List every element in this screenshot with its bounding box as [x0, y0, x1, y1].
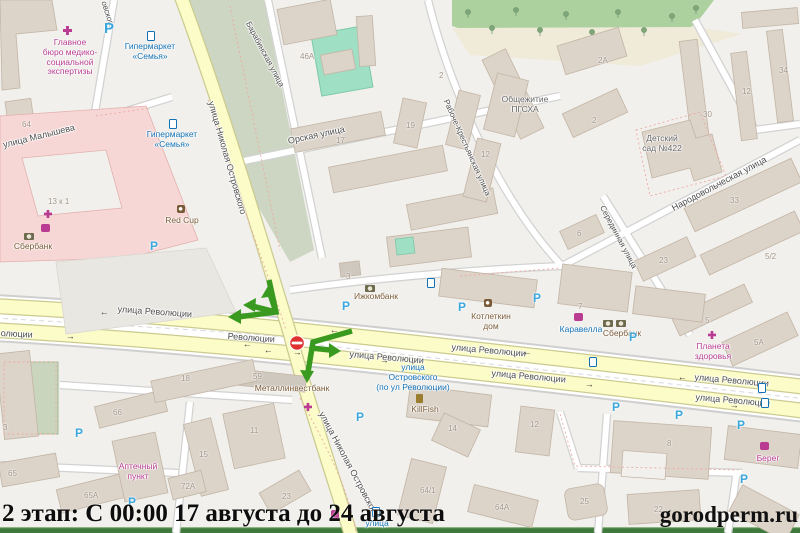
house-number: 30: [703, 110, 712, 119]
poi-label: Берег: [757, 454, 780, 464]
house-number: 72А: [181, 482, 195, 491]
bank-icon: [365, 285, 375, 292]
house-number: 7: [578, 302, 582, 311]
bar-goblet-icon: [416, 394, 423, 403]
street-label: Серединная улица: [598, 204, 639, 270]
parking-icon: P: [675, 408, 683, 422]
house-number: 23: [659, 256, 668, 265]
street-label: олюции: [0, 328, 33, 340]
lane-direction-arrow-icon: ←: [243, 340, 253, 350]
poi-label: Детский сад №422: [642, 134, 682, 154]
house-number: 19: [406, 121, 415, 130]
lane-direction-arrow-icon: ←: [330, 326, 340, 336]
house-number: 25: [580, 497, 589, 506]
street-label: улица Малышева: [2, 122, 76, 149]
poi-label: Котлеткин дом: [471, 312, 511, 332]
transit-stop-icon: [427, 278, 435, 288]
shopping-cart-icon: [760, 442, 769, 450]
street-label: Рабоче-Крестьянская улица: [442, 98, 493, 197]
bank-icon: [603, 320, 613, 327]
poi-label: KillFish: [411, 405, 438, 415]
street-label: улица Революции: [451, 342, 526, 358]
parking-icon: P: [150, 239, 158, 253]
cafe-cup-icon: [177, 205, 185, 213]
house-number: 8: [667, 439, 671, 448]
poi-label: Сбербанк: [14, 242, 52, 252]
street-label: улица Николая Островского: [206, 100, 248, 215]
poi-label: Аптечный пункт: [119, 462, 158, 482]
house-number: 64/1: [420, 486, 436, 495]
transit-stop-icon: [758, 383, 766, 393]
transit-stop-icon: [589, 357, 597, 367]
parking-icon: P: [342, 299, 350, 313]
house-number: 11: [250, 426, 258, 435]
pharmacy-cross-icon: [708, 331, 716, 339]
house-number: 5: [705, 316, 709, 325]
house-number: 15: [199, 450, 208, 459]
poi-label: Ижкомбанк: [354, 292, 398, 302]
house-number: 17: [336, 136, 345, 145]
house-number: 64: [22, 120, 31, 129]
street-label: улица Революции: [117, 304, 192, 319]
poi-label: Red Cup: [165, 216, 199, 226]
parking-icon: P: [737, 418, 745, 432]
map-labels-layer: улица Малышеваовскогоулица Николая Остро…: [0, 0, 800, 533]
poi-label: Главное бюро медико- социальной эксперти…: [43, 38, 98, 77]
house-number: 2: [439, 71, 443, 80]
pharmacy-cross-icon: [304, 403, 312, 411]
house-number: 2А: [598, 56, 608, 65]
house-number: 65А: [84, 491, 98, 500]
house-number: 65: [8, 469, 17, 478]
house-number: 34: [779, 66, 788, 75]
shopping-cart-icon: [41, 224, 50, 232]
lane-direction-arrow-icon: →: [585, 380, 595, 390]
house-number: 3: [346, 272, 350, 281]
shopping-cart-icon: [574, 313, 583, 321]
house-number: 13 к 1: [48, 197, 69, 206]
lane-direction-arrow-icon: →: [66, 332, 76, 342]
lane-direction-arrow-icon: ←: [523, 348, 533, 358]
bank-icon: [616, 320, 626, 327]
poi-label: Гипермаркет «Семья»: [125, 42, 175, 62]
parking-icon: P: [458, 300, 466, 314]
cafe-cup-icon: [484, 299, 492, 307]
stage-caption: 2 этап: С 00:00 17 августа до 24 августа: [2, 500, 445, 528]
house-number: 2: [592, 116, 596, 125]
parking-icon: P: [740, 472, 748, 486]
poi-label: Металлинвестбанк: [255, 384, 330, 394]
transit-stop-icon: [169, 119, 177, 129]
house-number: 59: [253, 372, 262, 381]
poi-label: Гипермаркет «Семья»: [147, 130, 197, 150]
poi-label: Каравелла: [560, 325, 603, 335]
lane-direction-arrow-icon: ←: [100, 308, 110, 318]
poi-label: Общежитие ПГСХА: [502, 95, 549, 115]
pharmacy-cross-icon: [44, 210, 52, 218]
house-number: 12: [530, 420, 539, 429]
lane-direction-arrow-icon: →: [730, 401, 740, 411]
poi-label: улица Островского (по ул Революции): [376, 363, 449, 392]
house-number: 33: [730, 196, 739, 205]
house-number: 12: [742, 87, 751, 96]
parking-icon: P: [533, 291, 541, 305]
bank-icon: [24, 233, 34, 240]
house-number: 5/2: [765, 252, 776, 261]
house-number: 46А: [300, 52, 314, 61]
map-image: улица Малышеваовскогоулица Николая Остро…: [0, 0, 800, 533]
watermark: gorodperm.ru: [660, 502, 798, 528]
lane-direction-arrow-icon: ←: [678, 373, 688, 383]
parking-icon: P: [629, 330, 637, 344]
lane-direction-arrow-icon: ←: [264, 346, 274, 356]
house-number: 12: [481, 150, 490, 159]
parking-icon: P: [356, 410, 364, 424]
lane-direction-arrow-icon: →: [293, 348, 303, 358]
street-label: Барабинская улица: [244, 20, 286, 88]
house-number: 18: [181, 374, 190, 383]
street-label: улица Революции: [491, 368, 566, 384]
house-number: 6: [577, 229, 581, 238]
transit-stop-icon: [761, 398, 769, 408]
poi-label: Планета здоровья: [695, 342, 731, 362]
lane-direction-arrow-icon: →: [380, 356, 390, 366]
house-number: 3: [3, 423, 7, 432]
house-number: 64А: [495, 503, 509, 512]
parking-icon: P: [75, 426, 83, 440]
transit-stop-icon: [147, 31, 155, 41]
house-number: 66: [113, 408, 122, 417]
medical-cross-icon: [63, 26, 72, 35]
house-number: 5А: [754, 338, 764, 347]
street-label: Народовольческая улица: [670, 154, 768, 213]
house-number: 14: [448, 424, 457, 433]
parking-icon: P: [104, 20, 114, 37]
parking-icon: P: [612, 400, 620, 414]
